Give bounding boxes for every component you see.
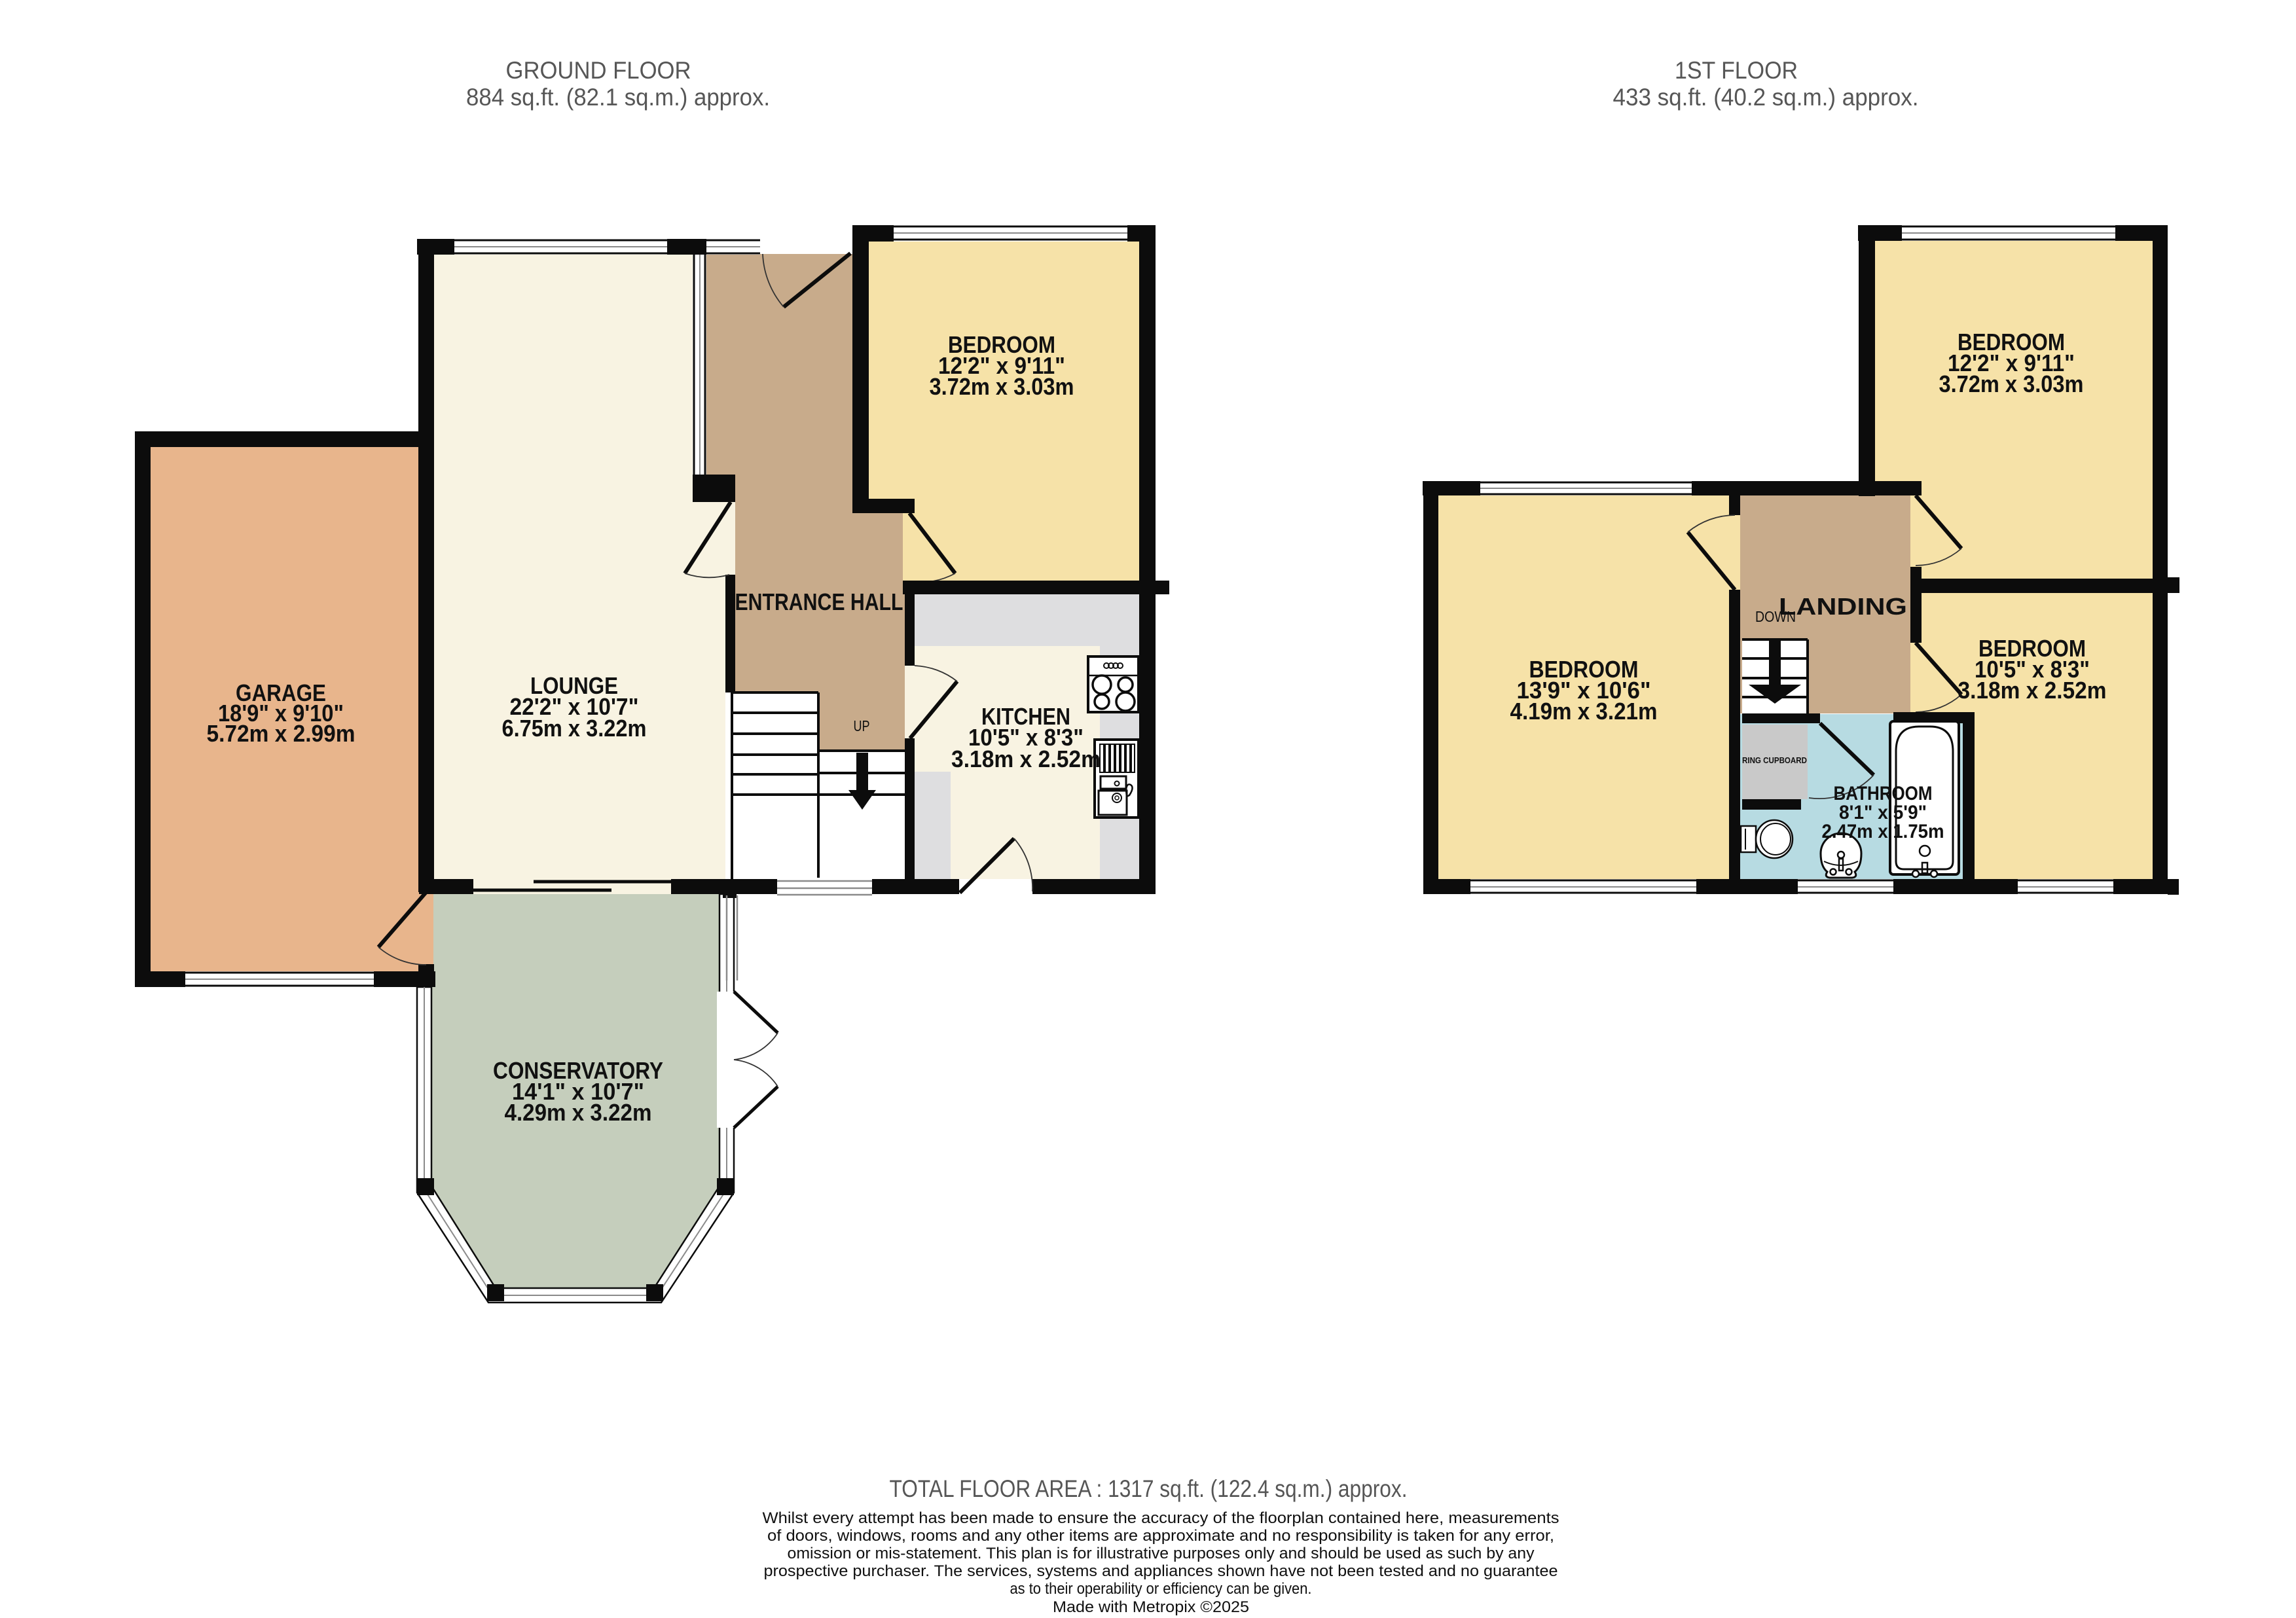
svg-text:Made with Metropix ©2025: Made with Metropix ©2025 [1053, 1598, 1249, 1616]
svg-text:3.18m x 2.52m: 3.18m x 2.52m [951, 746, 1101, 772]
svg-text:433 sq.ft. (40.2 sq.m.) approx: 433 sq.ft. (40.2 sq.m.) approx. [1613, 84, 1919, 111]
svg-text:4.29m x 3.22m: 4.29m x 3.22m [505, 1099, 652, 1126]
svg-text:3.72m x 3.03m: 3.72m x 3.03m [930, 373, 1074, 400]
svg-text:1ST FLOOR: 1ST FLOOR [1675, 57, 1798, 84]
svg-text:2.47m x 1.75m: 2.47m x 1.75m [1822, 821, 1944, 842]
svg-text:UP: UP [854, 717, 870, 734]
svg-text:RING CUPBOARD: RING CUPBOARD [1742, 755, 1807, 765]
svg-text:5.72m x 2.99m: 5.72m x 2.99m [207, 720, 355, 747]
svg-text:GROUND FLOOR: GROUND FLOOR [506, 57, 691, 84]
svg-text:3.72m x 3.03m: 3.72m x 3.03m [1939, 370, 2084, 397]
svg-text:ENTRANCE HALL: ENTRANCE HALL [735, 588, 903, 615]
svg-text:DOWN: DOWN [1755, 608, 1796, 625]
svg-text:as to their operability or eff: as to their operability or efficiency ca… [1010, 1580, 1312, 1598]
svg-text:LANDING: LANDING [1779, 593, 1907, 620]
svg-text:4.19m x 3.21m: 4.19m x 3.21m [1510, 698, 1658, 725]
svg-text:of doors, windows, rooms and a: of doors, windows, rooms and any other i… [767, 1527, 1554, 1545]
svg-text:Whilst every attempt has been: Whilst every attempt has been made to en… [763, 1509, 1559, 1527]
svg-text:TOTAL FLOOR AREA : 1317 sq.ft.: TOTAL FLOOR AREA : 1317 sq.ft. (122.4 sq… [890, 1475, 1408, 1502]
svg-text:3.18m x 2.52m: 3.18m x 2.52m [1958, 677, 2107, 704]
svg-text:884 sq.ft. (82.1 sq.m.) approx: 884 sq.ft. (82.1 sq.m.) approx. [466, 84, 770, 111]
svg-text:prospective purchaser. The ser: prospective purchaser. The services, sys… [764, 1562, 1558, 1580]
svg-text:6.75m x 3.22m: 6.75m x 3.22m [502, 715, 647, 742]
svg-text:omission or mis-statement. Thi: omission or mis-statement. This plan is … [788, 1545, 1535, 1562]
